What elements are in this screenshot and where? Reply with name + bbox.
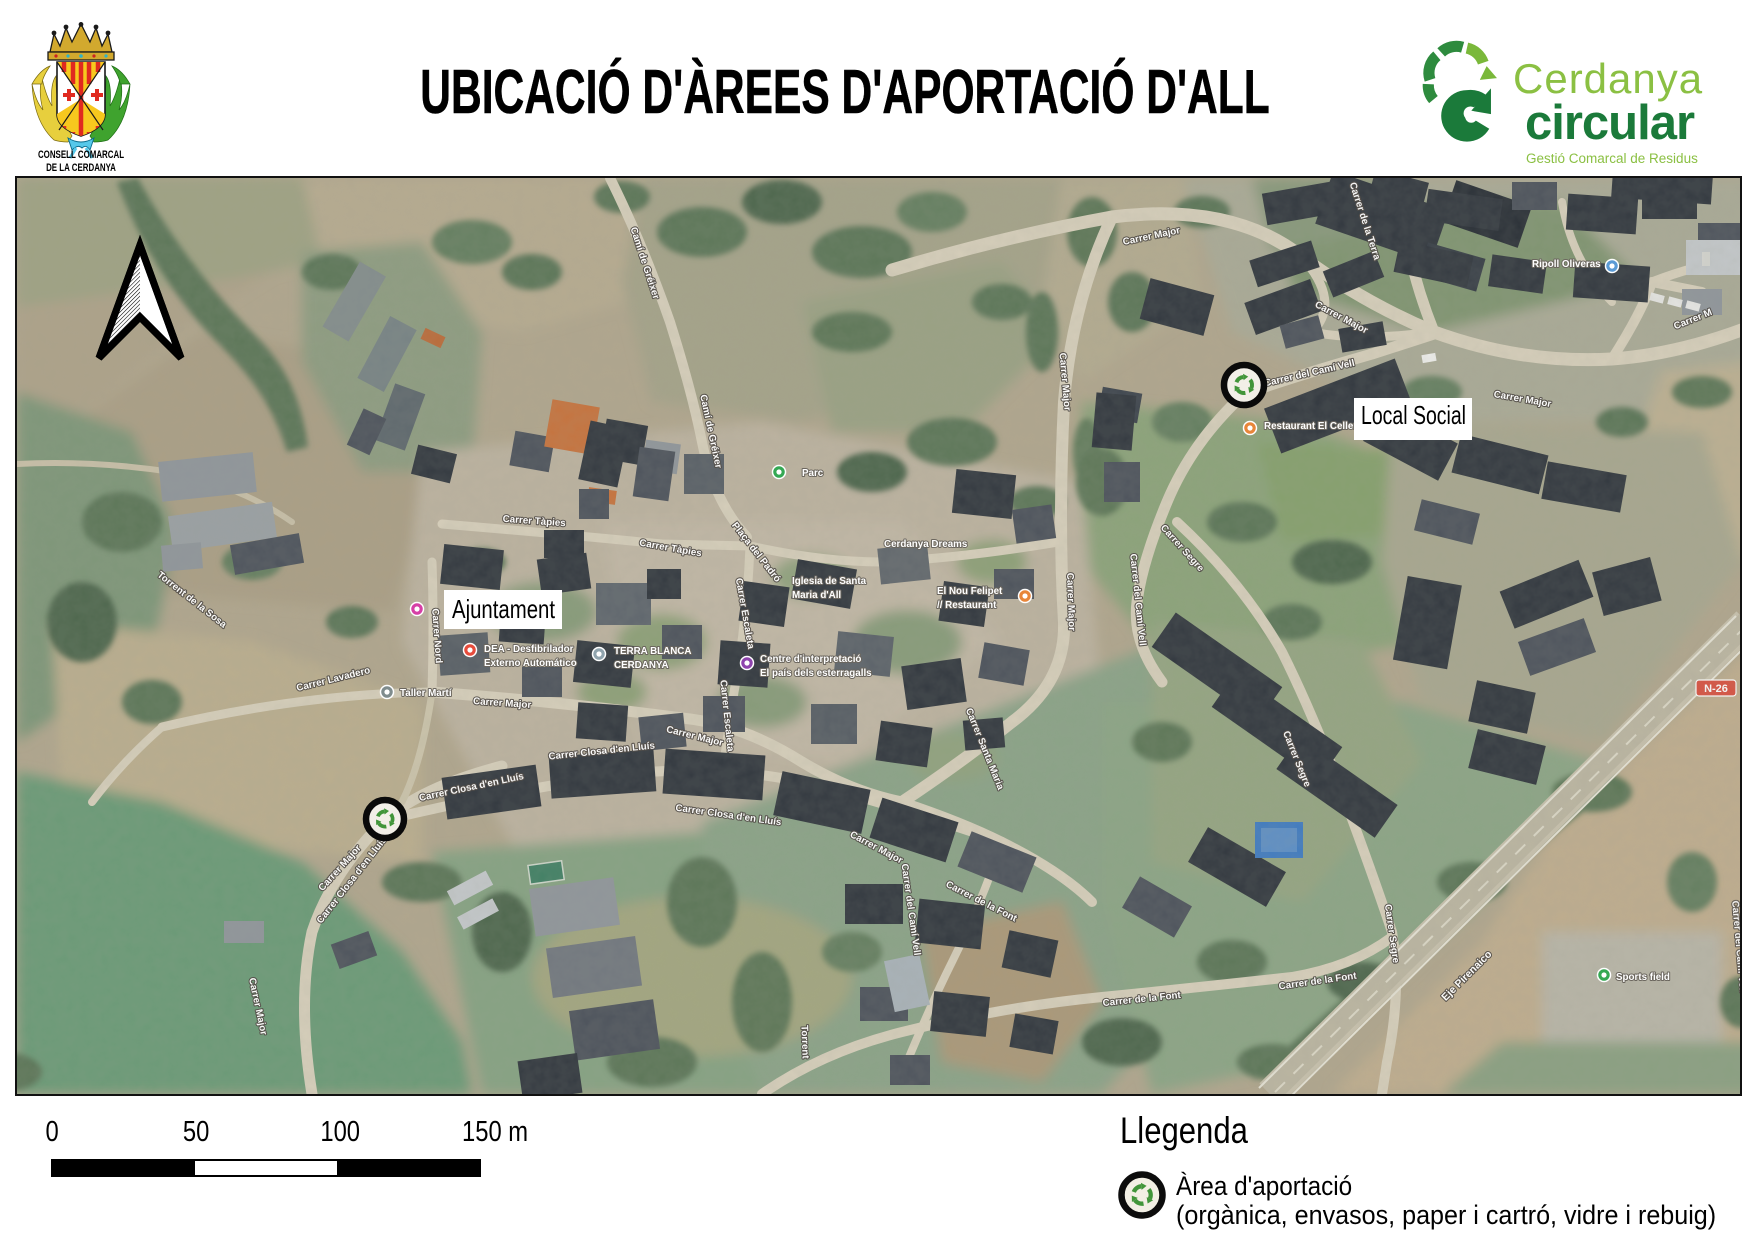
svg-text:El Nou Felipet: El Nou Felipet bbox=[937, 586, 1003, 597]
svg-text:// Restaurant: // Restaurant bbox=[937, 600, 997, 611]
svg-text:Maria d'All: Maria d'All bbox=[792, 590, 841, 601]
svg-text:Local Social: Local Social bbox=[1361, 400, 1466, 430]
svg-text:Sports field: Sports field bbox=[1616, 972, 1670, 983]
svg-text:Iglesia de Santa: Iglesia de Santa bbox=[792, 576, 867, 587]
svg-text:Ajuntament: Ajuntament bbox=[452, 594, 556, 624]
svg-text:Parc: Parc bbox=[802, 468, 824, 479]
svg-text:Cerdanya Dreams: Cerdanya Dreams bbox=[884, 539, 968, 550]
svg-text:TERRA BLANCA: TERRA BLANCA bbox=[614, 646, 691, 657]
svg-text:El país dels esterragalls: El país dels esterragalls bbox=[760, 668, 872, 679]
svg-text:Externo Automático: Externo Automático bbox=[484, 658, 577, 669]
svg-text:Centre d'interpretació: Centre d'interpretació bbox=[760, 654, 861, 665]
svg-text:DEA - Desfibrilador: DEA - Desfibrilador bbox=[484, 644, 574, 655]
svg-text:Torrent: Torrent bbox=[798, 1025, 810, 1060]
svg-text:Carrer Major: Carrer Major bbox=[1064, 573, 1077, 632]
svg-text:CERDANYA: CERDANYA bbox=[614, 660, 669, 671]
svg-text:Ripoll Oliveras: Ripoll Oliveras bbox=[1532, 259, 1601, 270]
svg-text:Taller Martí: Taller Martí bbox=[400, 688, 452, 699]
